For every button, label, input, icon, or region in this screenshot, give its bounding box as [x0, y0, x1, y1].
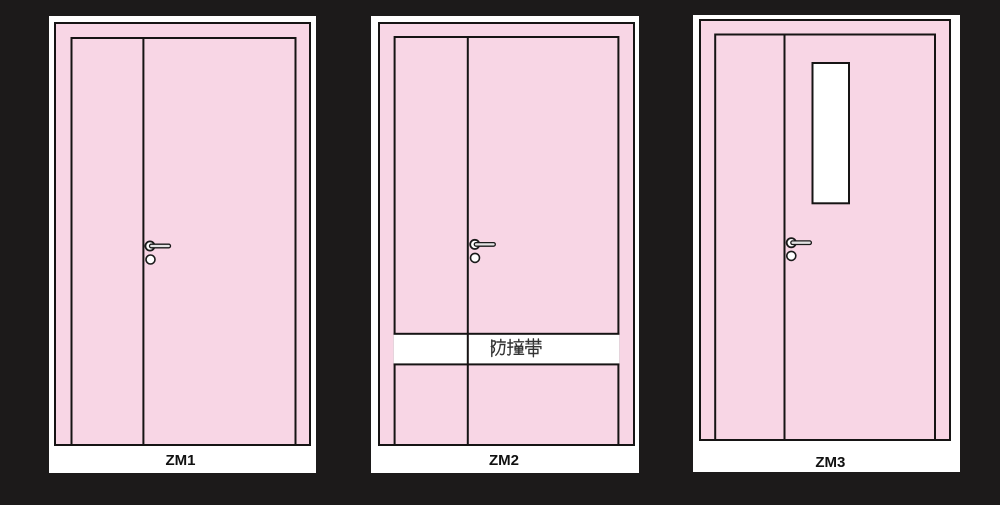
svg-text:ZM2: ZM2 — [489, 452, 519, 469]
svg-text:ZM1: ZM1 — [166, 452, 196, 469]
svg-text:ZM3: ZM3 — [815, 454, 845, 471]
